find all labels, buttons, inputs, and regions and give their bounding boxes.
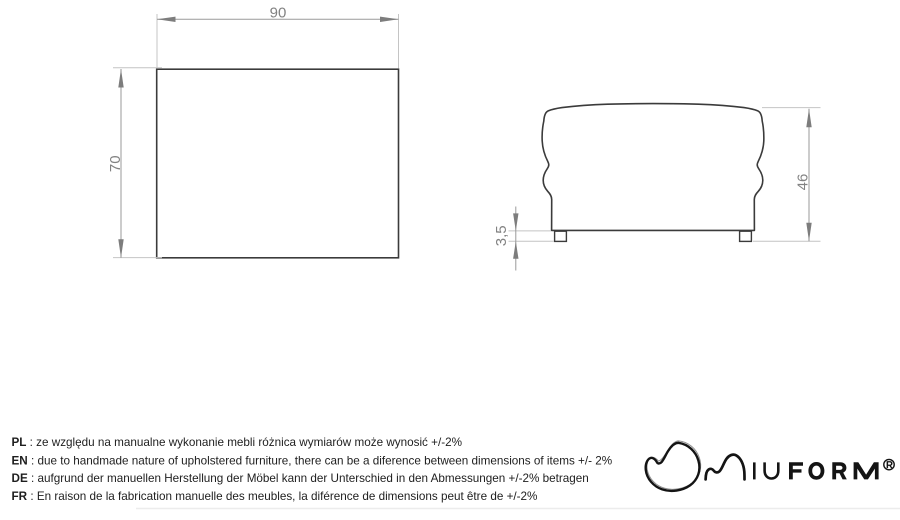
svg-text:DE : aufgrund der manuellen He: DE : aufgrund der manuellen Herstellung …	[12, 472, 589, 485]
svg-text:EN : due to handmade nature of: EN : due to handmade nature of upholster…	[12, 454, 613, 467]
svg-text:70: 70	[107, 155, 124, 172]
svg-text:46: 46	[795, 174, 812, 191]
svg-text:3,5: 3,5	[493, 225, 510, 246]
svg-text:PL : ze względu na manualne wy: PL : ze względu na manualne wykonanie me…	[12, 436, 463, 449]
svg-text:90: 90	[270, 5, 287, 22]
svg-text:FR : En raison de la fabricati: FR : En raison de la fabrication manuell…	[12, 490, 538, 503]
